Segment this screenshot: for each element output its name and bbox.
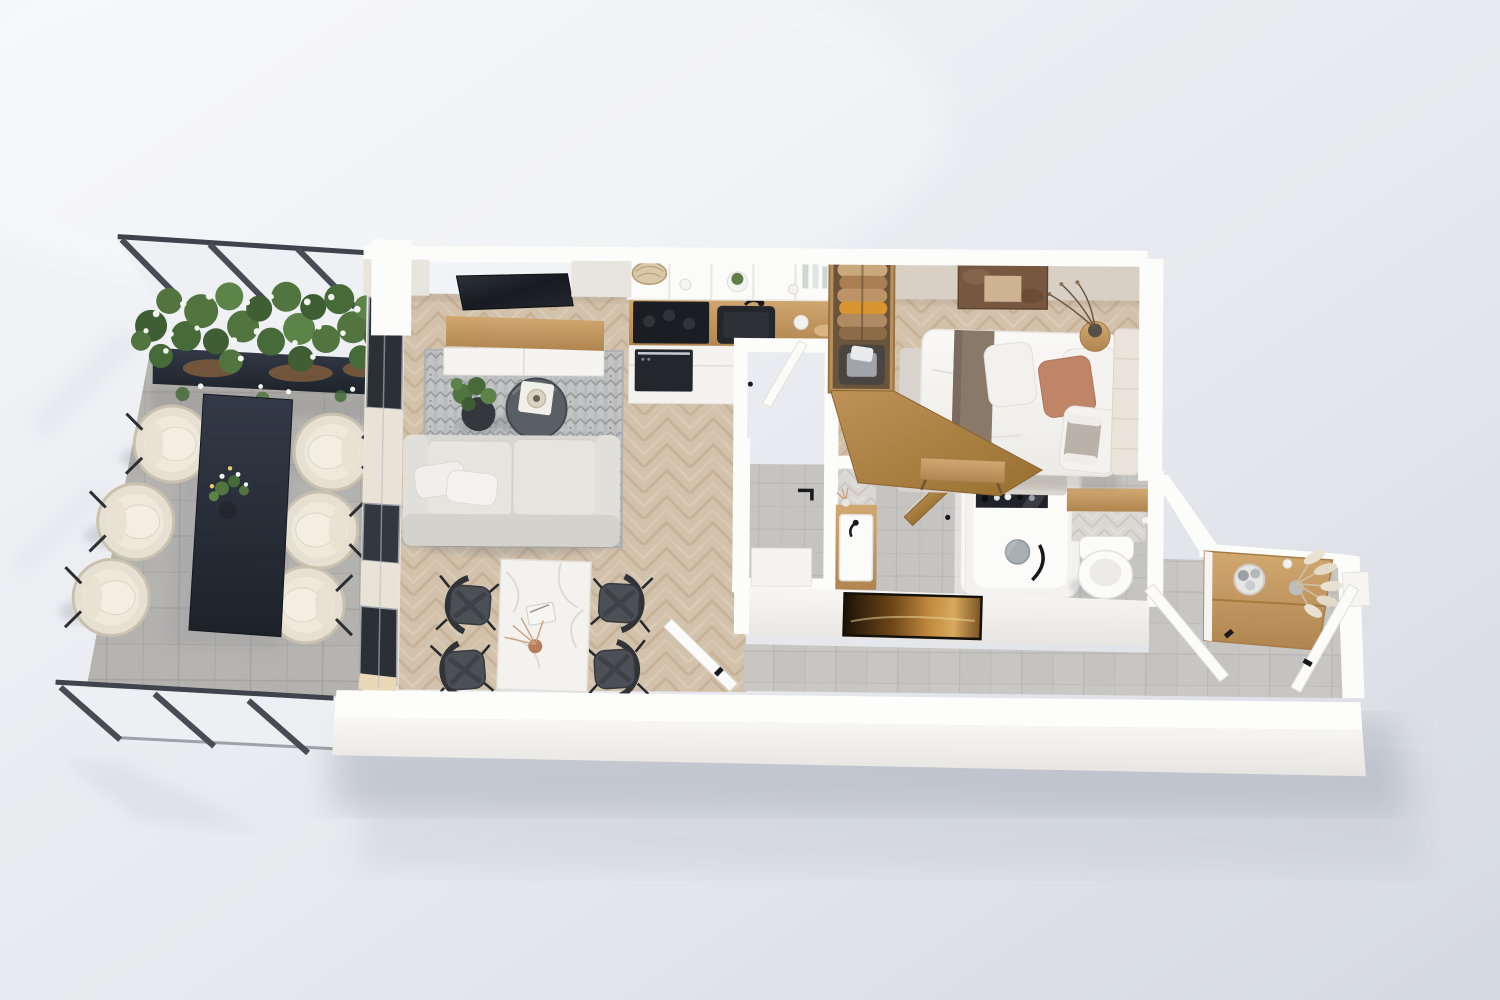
toiletry-bottle [1017,494,1023,500]
plate [794,315,808,329]
marble-dining-table [497,559,591,692]
sofa-pillow [445,469,498,506]
tv [456,273,573,311]
bedroom-artwork-inner [984,276,1021,302]
headboard [1111,328,1143,475]
sofa-backrest [403,514,620,548]
jar [788,284,798,294]
rolled-towel [1245,580,1255,590]
bottle [802,262,808,288]
northwest-corner-column [371,239,412,335]
bottle [822,267,827,289]
console-oak-top [446,316,604,351]
rolled-towel [1238,570,1249,581]
outdoor-table [189,394,293,637]
ceramic-vase [1283,559,1292,568]
north-wall-face [571,261,631,297]
wc-oak-shelf [1067,488,1156,512]
sideboard-edge [1204,551,1213,641]
east-wall [1138,259,1164,481]
toiletry-bottle [981,495,988,502]
room-bedroom [828,256,1144,497]
shower-base [751,548,811,586]
toiletry-bottle [1004,493,1011,500]
shelf-plant [731,273,743,285]
rolled-towel [1250,568,1260,578]
book [526,602,556,625]
vanity-vase [842,499,850,507]
cup [680,279,691,290]
building-cast-shadow-soft [360,760,1420,870]
room-toilet [1066,470,1164,607]
floorplan-3d-render [0,0,1500,1000]
media-console [444,316,604,376]
pillow-white [983,341,1038,408]
sofa [397,434,622,557]
living-hall-wall [734,438,750,634]
floorplan-render-stage [0,0,1500,1000]
wall [734,338,839,353]
wardrobe-open [829,256,895,393]
oven [635,349,693,391]
